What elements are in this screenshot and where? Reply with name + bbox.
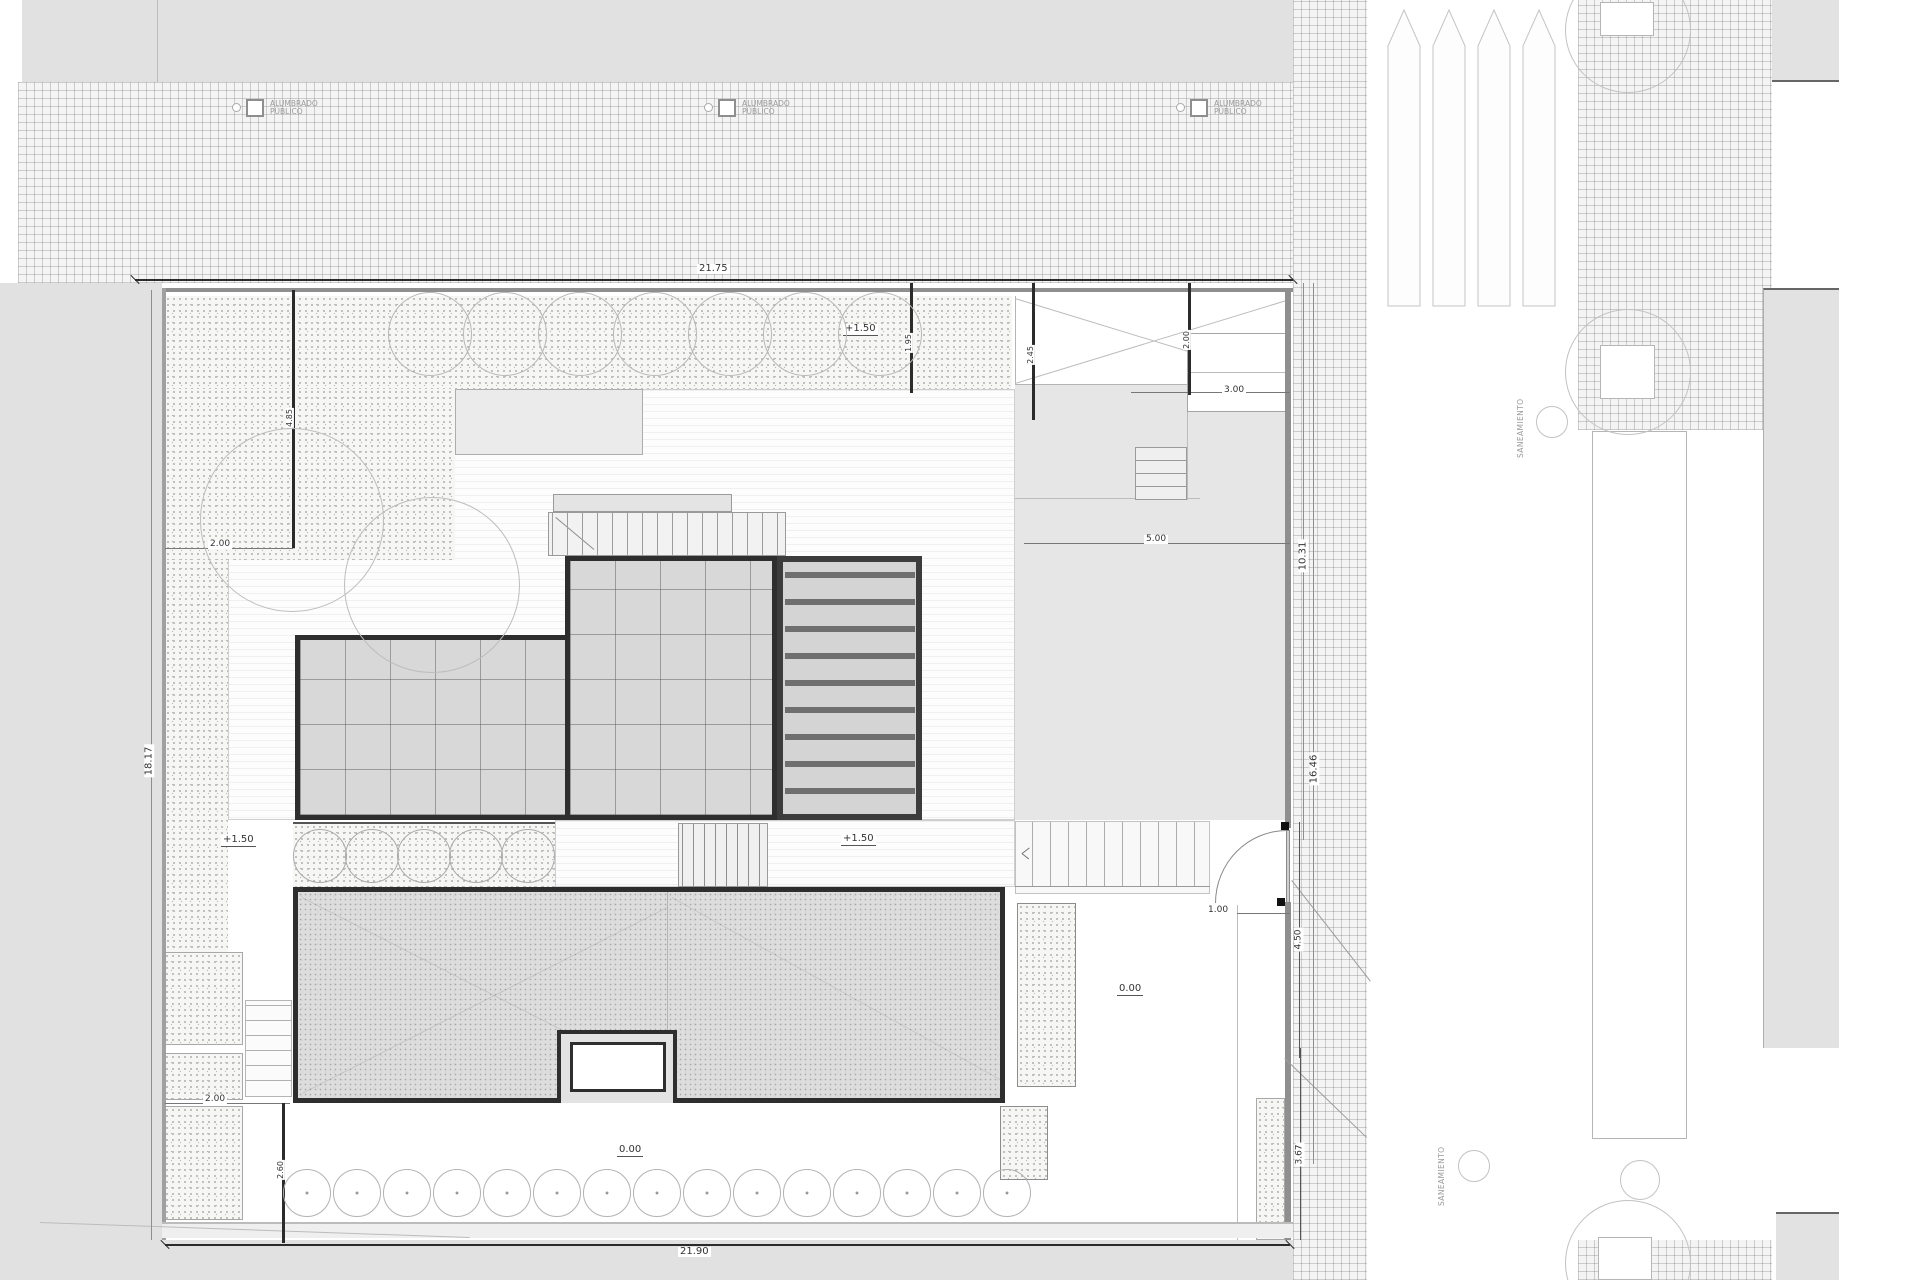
stair-top-tread — [567, 513, 568, 555]
garden-tree-canopy — [838, 292, 922, 376]
stair-right-tread — [1176, 822, 1177, 886]
sewer-label-lower: SANEAMIENTO — [1437, 1136, 1446, 1206]
dim-label-terrace-top: 3.00 — [1222, 386, 1246, 395]
dim-line-gate-width — [1237, 913, 1290, 914]
dim-label-plot-top: 21.75 — [697, 264, 730, 274]
streetlight-bulb-icon-3 — [1176, 103, 1185, 112]
dim-label-setback-c: 2.00 — [1183, 330, 1191, 350]
stair-right-tread — [1068, 822, 1069, 886]
garden-stair-tread — [246, 1005, 291, 1006]
dim-label-setback-b: 2.45 — [1027, 345, 1035, 365]
dim-line-garden-bottom-w — [165, 1103, 290, 1104]
streetlight-label-2: ALUMBRADO PÚBLICO — [742, 100, 790, 117]
pergola-slat — [785, 599, 915, 605]
stair-top-tread — [657, 513, 658, 555]
garden-stair-tread — [246, 1065, 291, 1066]
dim-label-garden-bottom-w: 2.00 — [203, 1095, 227, 1104]
manhole-lower — [1458, 1150, 1490, 1182]
planter-left-3 — [163, 1106, 243, 1220]
dim-label-terrace-width: 5.00 — [1144, 535, 1168, 544]
street-tree-pit-2 — [1600, 345, 1655, 399]
level-label-landing: +1.50 — [841, 834, 876, 846]
garden-tree-large — [344, 497, 520, 673]
planter-left-1 — [163, 952, 243, 1045]
planter-right-strip — [1017, 903, 1076, 1087]
streetlight-label-2-line2: PÚBLICO — [742, 107, 775, 116]
streetlight-bulb-icon-2 — [704, 103, 713, 112]
hedge-shrub — [345, 829, 399, 883]
pergola-slat — [785, 761, 915, 767]
garden-tree-canopy — [763, 292, 847, 376]
streetlight-label-3: ALUMBRADO PÚBLICO — [1214, 100, 1262, 117]
sewer-label-upper: SANEAMIENTO — [1516, 388, 1525, 458]
plot-curb-band — [162, 1224, 1293, 1238]
left-road — [0, 283, 162, 1280]
top-road — [22, 0, 1293, 82]
stair-top-tread — [627, 513, 628, 555]
manhole-median — [1620, 1160, 1660, 1200]
terrace-vline — [1187, 412, 1188, 500]
stair-right-tread — [1194, 822, 1195, 886]
hedge-shrub — [397, 829, 451, 883]
stair-top-tread — [702, 513, 703, 555]
pergola-slat — [785, 707, 915, 713]
neighbor-building-bottom — [1776, 1212, 1839, 1280]
yard-tree — [583, 1169, 631, 1217]
right-sidewalk-strip-hatch — [1293, 82, 1367, 1280]
stair-mid-tread — [748, 824, 749, 886]
streetlight-label-1-line2: PÚBLICO — [270, 107, 303, 116]
yard-tree — [633, 1169, 681, 1217]
dim-line-terrace-top — [1131, 392, 1290, 393]
stair-right-tread — [1086, 822, 1087, 886]
stair-right-tread — [1122, 822, 1123, 886]
stair-mid-tread — [737, 824, 738, 886]
stair-top-tread — [597, 513, 598, 555]
plot-wall-left — [162, 288, 166, 1240]
garden-stair-tread — [246, 1050, 291, 1051]
site-plan-canvas: SANEAMIENTO SANEAMIENTO ALUMBRADO PÚBLIC… — [0, 0, 1920, 1280]
courtyard-edge-line — [1237, 905, 1238, 1240]
gate-hinge-top — [1281, 822, 1289, 830]
hedge-shrub — [449, 829, 503, 883]
stair-top-bench — [553, 494, 732, 512]
top-road-divider — [157, 0, 158, 82]
stair-top-tread — [552, 513, 553, 555]
dim-label-sidewalk-upper: 10.31 — [1298, 540, 1308, 573]
stair-right-tread — [1104, 822, 1105, 886]
stair-top-tread — [777, 513, 778, 555]
terrace-stair-tread — [1136, 473, 1186, 474]
street-tree-pit-3 — [1598, 1237, 1652, 1280]
stair-mid-tread — [715, 824, 716, 886]
dim-label-corner-side: 3.67 — [1296, 1142, 1305, 1166]
garden-stair-tread — [246, 1035, 291, 1036]
stair-top-tread — [762, 513, 763, 555]
pergola-slat — [785, 734, 915, 740]
stair-right-tread — [1050, 822, 1051, 886]
stair-right-tread — [1032, 822, 1033, 886]
streetlight-box-1 — [246, 99, 264, 117]
streetlight-box-3 — [1190, 99, 1208, 117]
pergola-slat — [785, 572, 915, 578]
roof-panel — [455, 389, 643, 455]
neighbor-building-mid — [1763, 288, 1839, 1048]
yard-tree — [433, 1169, 481, 1217]
dim-line-top — [135, 279, 1293, 281]
yard-tree — [783, 1169, 831, 1217]
garden-tree-canopy — [538, 292, 622, 376]
yard-tree — [833, 1169, 881, 1217]
stair-mid-run — [678, 823, 768, 887]
yard-tree — [933, 1169, 981, 1217]
garden-stair — [245, 1000, 292, 1097]
stair-top-tread — [687, 513, 688, 555]
skylight-grid-roof-right — [565, 556, 777, 820]
stair-top-run — [548, 512, 786, 556]
yard-tree — [483, 1169, 531, 1217]
stair-top-tread — [582, 513, 583, 555]
yard-tree — [283, 1169, 331, 1217]
yard-tree — [333, 1169, 381, 1217]
dim-label-garden-left-depth: 4.85 — [286, 408, 294, 428]
pergola-slat — [785, 626, 915, 632]
yard-tree — [883, 1169, 931, 1217]
corner-sidewalk-hatch — [1293, 0, 1367, 82]
garden-tree-canopy — [388, 292, 472, 376]
pergola-slat — [785, 680, 915, 686]
streetlight-box-2 — [718, 99, 736, 117]
road-lane-arrows — [1380, 8, 1560, 308]
mid-landing-deck — [555, 820, 1015, 887]
hedge-shrub — [293, 829, 347, 883]
stair-top-tread — [717, 513, 718, 555]
garden-stair-tread — [246, 1080, 291, 1081]
pergola-slat — [785, 788, 915, 794]
yard-tree — [983, 1169, 1031, 1217]
dim-line-bottom — [165, 1244, 1290, 1246]
plot-wall-right-lower — [1285, 902, 1291, 1240]
dim-label-gate-width: 1.00 — [1206, 906, 1230, 915]
stair-top-tread — [642, 513, 643, 555]
yard-tree — [683, 1169, 731, 1217]
gate-hinge-bottom — [1277, 898, 1285, 906]
top-sidewalk-hatch — [18, 82, 1367, 283]
street-tree-pit-1 — [1600, 2, 1654, 36]
stair-top-tread — [672, 513, 673, 555]
stair-right-run — [1015, 821, 1210, 894]
stair-mid-tread — [726, 824, 727, 886]
hedge-shrub — [501, 829, 555, 883]
dim-line-right-lower — [1313, 283, 1314, 1164]
road-median-strip — [1592, 431, 1687, 1139]
pergola-slatted-roof — [777, 556, 922, 820]
terrace-inset-line — [1187, 372, 1287, 373]
yard-tree — [383, 1169, 431, 1217]
planter-corner-strip — [1256, 1098, 1285, 1240]
garden-tree-canopy — [688, 292, 772, 376]
garden-tree-canopy — [613, 292, 697, 376]
dim-label-gate-side: 4.50 — [1295, 927, 1304, 951]
stair-top-tread — [747, 513, 748, 555]
gate-door-leaf — [1286, 830, 1290, 903]
stair-top-tread — [612, 513, 613, 555]
dim-label-sidewalk-lower: 16.46 — [1309, 753, 1319, 786]
level-label-courtyard: 0.00 — [1117, 984, 1143, 996]
garden-stair-tread — [246, 1020, 291, 1021]
garden-left-column — [165, 560, 228, 952]
patio-opening — [570, 1042, 666, 1092]
plot-wall-right-upper — [1285, 288, 1291, 828]
pergola-slat — [785, 653, 915, 659]
stair-right-tread — [1140, 822, 1141, 886]
stair-mid-tread — [759, 824, 760, 886]
stair-right-rail — [1015, 886, 1210, 887]
neighbor-building-top — [1772, 0, 1839, 82]
terrace-stair-tread — [1136, 486, 1186, 487]
streetlight-bulb-icon — [232, 103, 241, 112]
dim-label-plot-left: 18.17 — [144, 745, 154, 778]
stair-mid-tread — [704, 824, 705, 886]
garden-tree-canopy — [463, 292, 547, 376]
yard-tree — [533, 1169, 581, 1217]
dim-label-plot-bottom: 21.90 — [678, 1247, 711, 1257]
manhole-upper — [1536, 406, 1568, 438]
stair-right-tread — [1158, 822, 1159, 886]
streetlight-label-1: ALUMBRADO PÚBLICO — [270, 100, 318, 117]
level-label-bottom-yard: 0.00 — [617, 1145, 643, 1157]
dim-label-corner-inner: 2.60 — [277, 1160, 285, 1180]
streetlight-label-3-line2: PÚBLICO — [1214, 107, 1247, 116]
level-label-garden: +1.50 — [221, 835, 256, 847]
stair-mid-tread — [693, 824, 694, 886]
terrace-stair-tread — [1136, 460, 1186, 461]
yard-tree — [733, 1169, 781, 1217]
planter-left-2 — [163, 1053, 243, 1100]
stair-mid-tread — [682, 824, 683, 886]
stair-top-tread — [732, 513, 733, 555]
